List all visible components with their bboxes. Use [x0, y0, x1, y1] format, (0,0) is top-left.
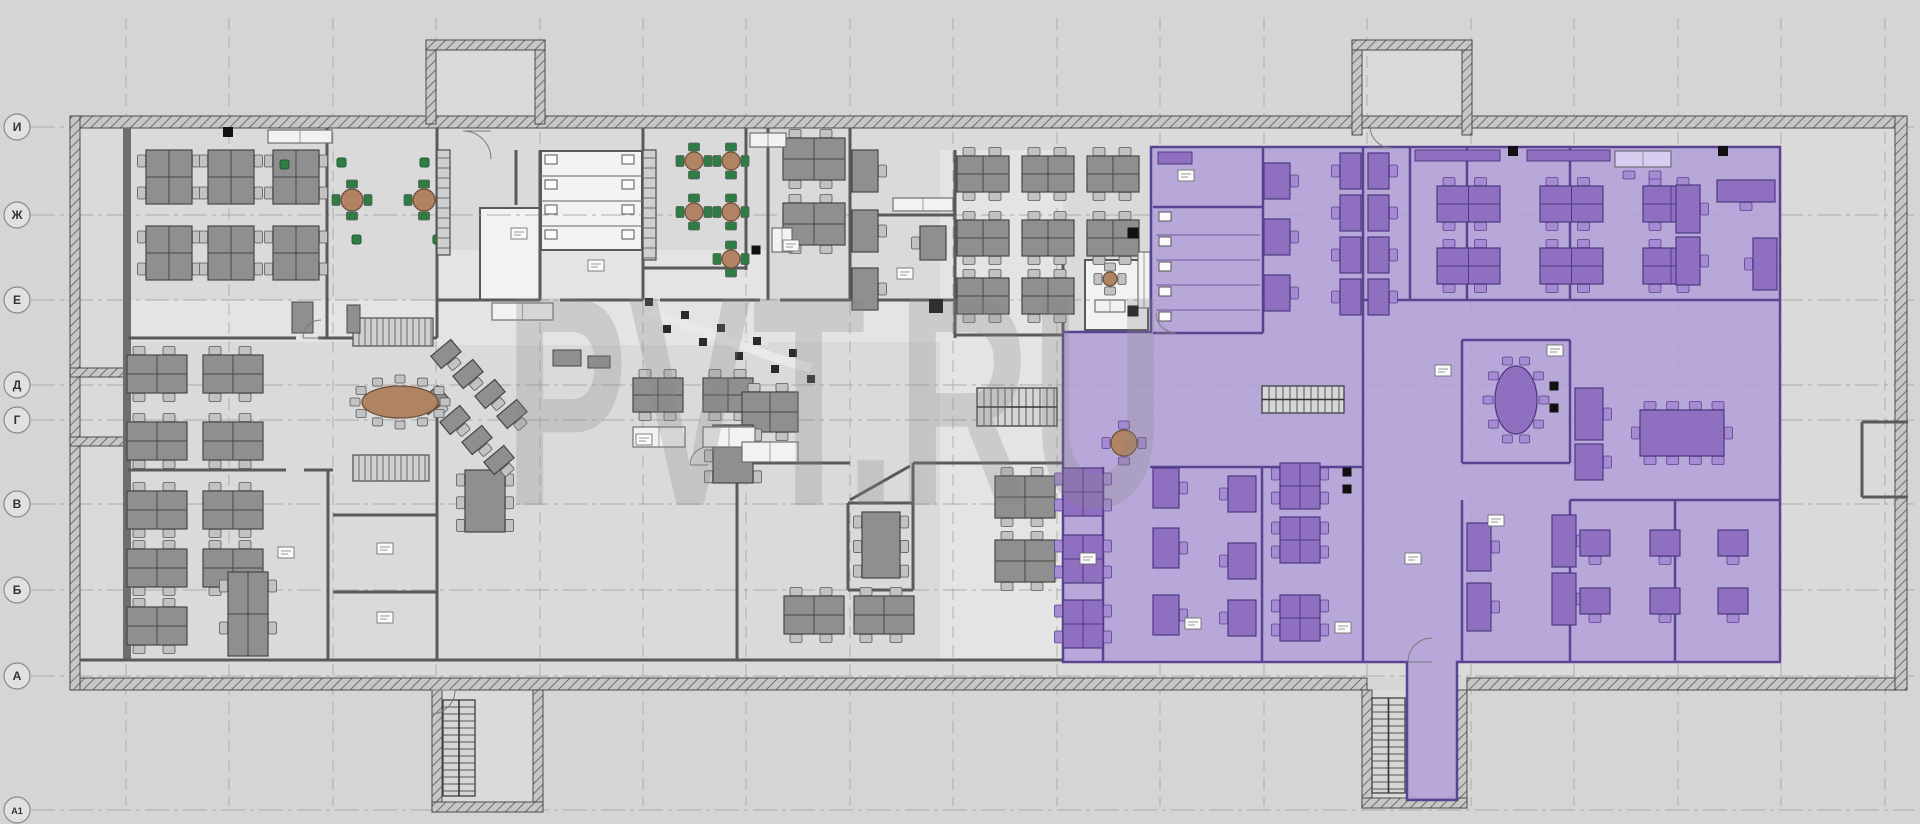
purple-furniture-chip [1547, 345, 1563, 356]
furniture-cV [265, 226, 328, 280]
svg-text:Г: Г [14, 413, 21, 427]
furniture-fix [545, 155, 557, 164]
furniture-bH [203, 414, 263, 469]
furniture-bH [203, 483, 263, 538]
furniture-stV [1372, 698, 1405, 793]
svg-text:В: В [13, 497, 22, 511]
purple-furniture-cab [1415, 150, 1500, 161]
furniture-pl [280, 160, 289, 169]
furniture-chip [377, 543, 393, 554]
purple-furniture-dot [1343, 468, 1352, 477]
furniture-pl [352, 235, 361, 244]
furniture-cV [265, 150, 328, 204]
furniture-cV [138, 226, 201, 280]
furniture-bH [203, 347, 263, 402]
furniture-bH [127, 483, 187, 538]
svg-text:Б: Б [13, 583, 22, 597]
purple-furniture-dot [1508, 146, 1518, 156]
purple-furniture-cV [1272, 595, 1329, 641]
svg-text:А: А [13, 669, 22, 683]
grid-label-А: А [4, 663, 30, 689]
purple-furniture-dot [1343, 485, 1352, 494]
watermark-text: PVT.RU [504, 233, 1165, 568]
purple-furniture-cab [1527, 150, 1610, 161]
purple-furniture-ch [1623, 171, 1635, 179]
furniture-cV [200, 226, 263, 280]
svg-text:Е: Е [13, 293, 21, 307]
grid-label-И: И [4, 114, 30, 140]
furniture-wt [268, 130, 332, 143]
purple-furniture-dot [1550, 382, 1559, 391]
purple-furniture-cV [1055, 600, 1112, 648]
floor-plan-svg: PVT.RU ИЖЕДГВБАА1 [0, 0, 1920, 824]
furniture-rack [353, 318, 433, 346]
furniture-bH [1087, 148, 1139, 201]
purple-furniture-bH [1437, 240, 1500, 293]
purple-furniture-cV [1272, 463, 1329, 509]
furniture-bH [127, 347, 187, 402]
furniture-stV [443, 700, 475, 796]
furniture-bH [854, 588, 914, 643]
purple-furniture-chip [1178, 170, 1194, 181]
furniture-fix [622, 205, 634, 214]
furniture-bH [127, 541, 187, 596]
floor-plan-stage: PVT.RU ИЖЕДГВБАА1 [0, 0, 1920, 824]
furniture-fix [622, 155, 634, 164]
purple-furniture-chip [1405, 553, 1421, 564]
svg-text:А1: А1 [11, 806, 23, 816]
furniture-wt [750, 133, 786, 147]
grid-label-Ж: Ж [4, 202, 30, 228]
furniture-pl [420, 158, 429, 167]
purple-furniture-dot [1718, 146, 1728, 156]
furniture-bH [783, 130, 845, 189]
furniture-wt [893, 198, 953, 211]
purple-furniture-bH [1540, 178, 1603, 231]
purple-furniture-bH [1540, 240, 1603, 293]
furniture-fix [545, 205, 557, 214]
purple-furniture-chip [1185, 618, 1201, 629]
purple-furniture-cV [1272, 517, 1329, 563]
furniture-bH [127, 599, 187, 654]
svg-text:И: И [13, 120, 22, 134]
furniture-chip [377, 612, 393, 623]
furniture-dot [223, 127, 233, 137]
furniture-cV [138, 150, 201, 204]
furniture-cab [292, 302, 313, 333]
grid-label-Г: Г [4, 407, 30, 433]
purple-furniture-cab [1158, 152, 1192, 164]
purple-furniture-mtH [1632, 402, 1733, 465]
purple-furniture-bH [1437, 178, 1500, 231]
grid-label-А1: А1 [4, 797, 30, 823]
furniture-rkV [437, 150, 450, 255]
grid-label-Д: Д [4, 372, 30, 398]
purple-furniture-fix [1159, 212, 1171, 221]
furniture-bH [1022, 148, 1074, 201]
furniture-fix [622, 180, 634, 189]
grid-label-Е: Е [4, 287, 30, 313]
furniture-bH [784, 588, 844, 643]
purple-furniture-ch [1649, 171, 1661, 179]
purple-furniture-chip [1488, 515, 1504, 526]
furniture-pl [337, 158, 346, 167]
purple-furniture-wt [1615, 151, 1671, 167]
purple-furniture-stH [1262, 386, 1344, 413]
purple-furniture-dot [1550, 404, 1559, 413]
furniture-bH [127, 414, 187, 469]
furniture-cV [200, 150, 263, 204]
purple-furniture-chip [1335, 622, 1351, 633]
grid-label-Б: Б [4, 577, 30, 603]
grid-label-В: В [4, 491, 30, 517]
furniture-rack [353, 455, 429, 481]
furniture-fix [545, 180, 557, 189]
furniture-cab [347, 305, 360, 333]
furniture-bV [220, 572, 277, 656]
furniture-chip [278, 547, 294, 558]
svg-text:Ж: Ж [11, 208, 23, 222]
furniture-bH [957, 148, 1009, 201]
svg-text:Д: Д [13, 378, 22, 392]
purple-furniture-chip [1435, 365, 1451, 376]
